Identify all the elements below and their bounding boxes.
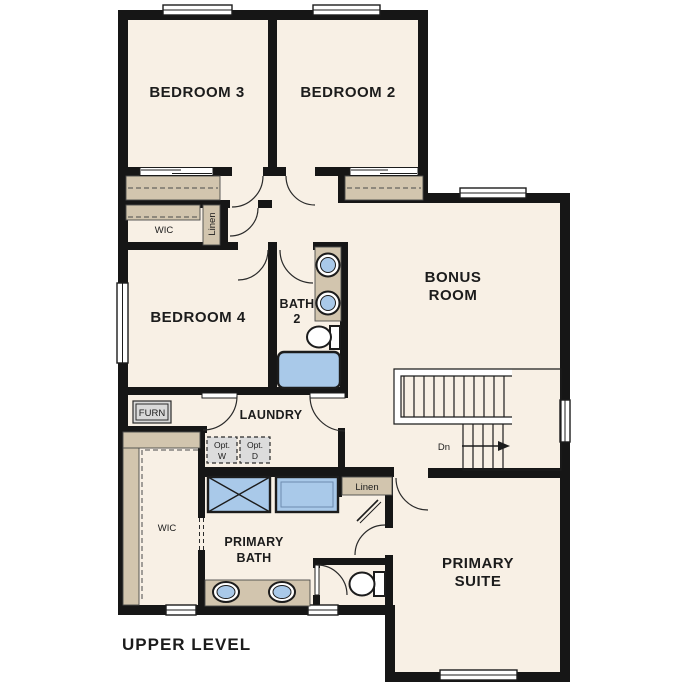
opt-dryer-line1: Opt. xyxy=(247,440,263,450)
room-label-bath2-line1: BATH xyxy=(280,297,315,311)
sink xyxy=(317,254,340,277)
toilet xyxy=(350,572,386,596)
sink xyxy=(213,582,239,602)
room-label-primary-bath-line2: BATH xyxy=(237,551,272,565)
room-label-primary-suite-line1: PRIMARY xyxy=(442,555,514,572)
closet-label-wic-upper: WIC xyxy=(155,225,174,236)
room-label-laundry: LAUNDRY xyxy=(240,408,303,422)
window xyxy=(460,188,526,198)
stairs-down-label: Dn xyxy=(438,442,450,453)
room-label-primary-suite-line2: SUITE xyxy=(455,573,502,590)
equipment-label-furnace: FURN xyxy=(139,408,166,419)
window xyxy=(308,605,338,615)
floor-plan-page: BEDROOM 3 BEDROOM 2 BEDROOM 4 BONUS ROOM… xyxy=(0,0,687,687)
closet-label-linen-primary: Linen xyxy=(355,482,378,493)
room-label-bedroom2: BEDROOM 2 xyxy=(300,84,395,101)
bedroom3-closet xyxy=(126,176,220,200)
bypass-doors xyxy=(140,168,213,176)
room-label-bonus-line1: BONUS xyxy=(425,269,482,286)
bedroom2-closet xyxy=(345,176,423,200)
plan-title: UPPER LEVEL xyxy=(122,635,251,654)
shower xyxy=(208,477,270,512)
sink xyxy=(269,582,295,602)
upper-wic-shelf xyxy=(126,205,200,220)
room-label-bath2-line2: 2 xyxy=(293,312,300,326)
room-label-primary-bath-line1: PRIMARY xyxy=(224,535,284,549)
opt-washer-line2: W xyxy=(218,451,226,461)
opt-washer-line1: Opt. xyxy=(214,440,230,450)
toilet xyxy=(307,326,340,349)
bathtub xyxy=(278,352,340,388)
sink xyxy=(317,292,340,315)
window xyxy=(313,5,380,15)
window xyxy=(440,670,517,680)
room-label-bedroom4: BEDROOM 4 xyxy=(150,309,246,326)
bypass-doors xyxy=(350,168,418,176)
window xyxy=(163,5,232,15)
bathtub xyxy=(276,477,338,512)
floor-plan-canvas: BEDROOM 3 BEDROOM 2 BEDROOM 4 BONUS ROOM… xyxy=(0,0,687,687)
opt-dryer-line2: D xyxy=(252,451,258,461)
window xyxy=(166,605,196,615)
room-label-bonus-line2: ROOM xyxy=(429,287,478,304)
closet-label-wic-primary: WIC xyxy=(158,523,177,534)
wic-opening xyxy=(198,518,205,550)
closet-label-linen-upper: Linen xyxy=(207,212,218,235)
window xyxy=(117,283,128,363)
room-label-bedroom3: BEDROOM 3 xyxy=(149,84,244,101)
